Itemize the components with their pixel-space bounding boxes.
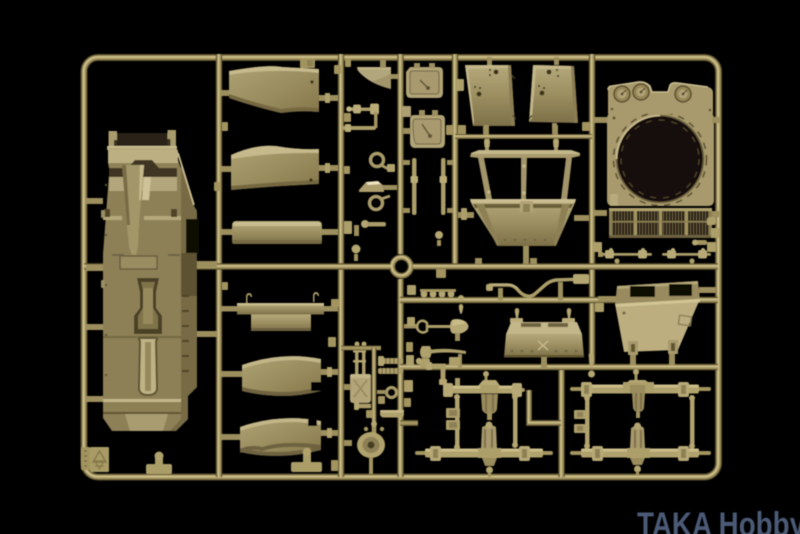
svg-text:TAKA Hobby: TAKA Hobby [637, 506, 800, 534]
